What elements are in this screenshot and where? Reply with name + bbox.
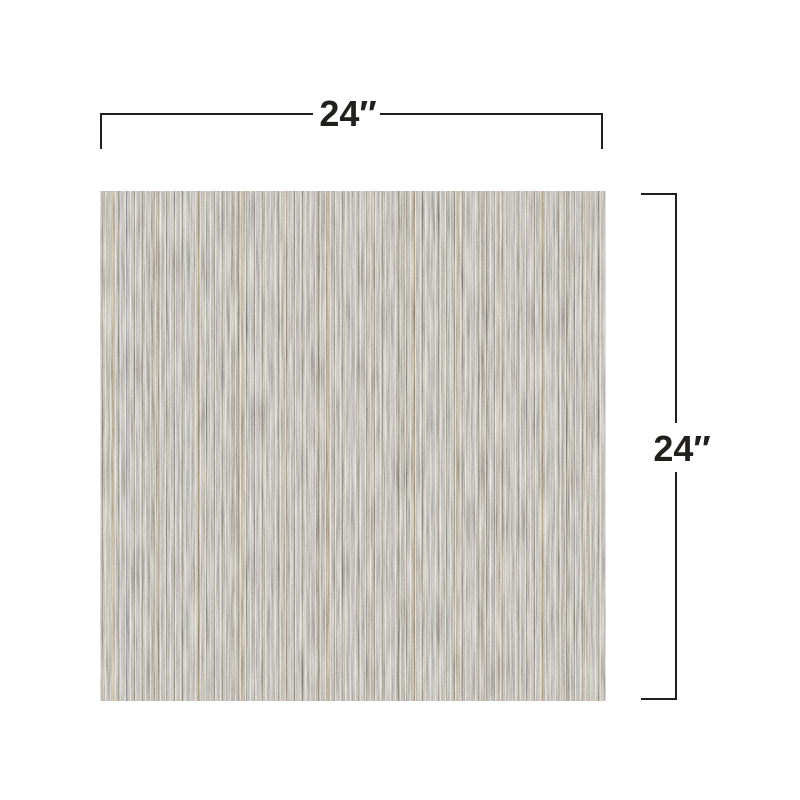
height-dimension-bracket-bottom	[641, 472, 676, 699]
width-dimension-bracket-left	[101, 114, 313, 149]
width-dimension-label: 24″	[319, 96, 376, 132]
width-dimension-bracket-right	[380, 114, 602, 149]
dimension-lines	[0, 0, 800, 800]
height-dimension-label: 24″	[653, 431, 710, 467]
dimension-diagram: 24″ 24″	[0, 0, 800, 800]
height-dimension-bracket-top	[641, 194, 676, 423]
